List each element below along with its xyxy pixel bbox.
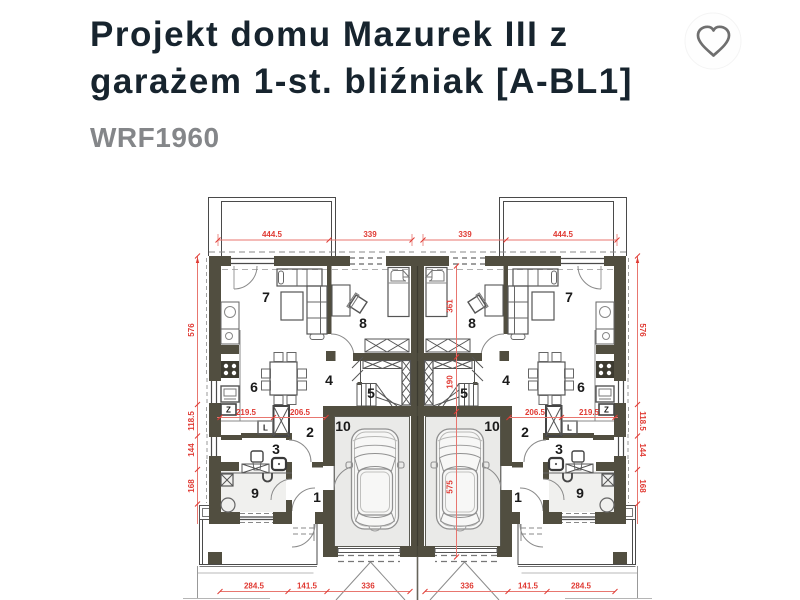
svg-text:206.5: 206.5	[525, 408, 546, 417]
svg-text:7: 7	[565, 289, 573, 305]
svg-text:336: 336	[361, 582, 375, 591]
svg-text:9: 9	[251, 485, 259, 501]
svg-text:361: 361	[446, 299, 455, 313]
svg-text:L: L	[567, 424, 572, 433]
svg-text:576: 576	[638, 323, 647, 337]
svg-text:Z: Z	[226, 406, 231, 415]
svg-text:336: 336	[460, 582, 474, 591]
svg-text:118.5: 118.5	[638, 411, 647, 431]
svg-text:339: 339	[458, 230, 472, 239]
svg-text:141.5: 141.5	[518, 582, 539, 591]
svg-text:6: 6	[250, 379, 258, 395]
svg-text:576: 576	[187, 323, 196, 337]
svg-text:Z: Z	[604, 406, 609, 415]
svg-text:284.5: 284.5	[244, 582, 265, 591]
svg-text:144: 144	[187, 443, 196, 457]
svg-text:1: 1	[514, 489, 522, 505]
svg-text:5: 5	[367, 385, 375, 401]
svg-text:2: 2	[306, 424, 314, 440]
svg-text:9: 9	[576, 485, 584, 501]
svg-text:3: 3	[555, 441, 563, 457]
svg-text:1: 1	[313, 489, 321, 505]
svg-text:219.5: 219.5	[579, 408, 600, 417]
svg-text:118.5: 118.5	[187, 411, 196, 431]
svg-text:444.5: 444.5	[262, 230, 283, 239]
svg-text:141.5: 141.5	[297, 582, 318, 591]
svg-text:206.5: 206.5	[290, 408, 311, 417]
svg-text:8: 8	[468, 315, 476, 331]
svg-text:168: 168	[187, 479, 196, 493]
svg-text:284.5: 284.5	[571, 582, 592, 591]
svg-text:339: 339	[363, 230, 377, 239]
svg-text:2: 2	[521, 424, 529, 440]
svg-text:190: 190	[446, 375, 455, 389]
svg-text:3: 3	[272, 441, 280, 457]
svg-text:444.5: 444.5	[553, 230, 574, 239]
svg-text:6: 6	[577, 379, 585, 395]
svg-text:8: 8	[359, 315, 367, 331]
svg-text:5: 5	[460, 385, 468, 401]
svg-text:10: 10	[484, 418, 500, 434]
svg-text:144: 144	[638, 443, 647, 457]
svg-text:4: 4	[502, 372, 510, 388]
svg-text:10: 10	[335, 418, 351, 434]
svg-text:575: 575	[446, 480, 455, 494]
svg-text:4: 4	[325, 372, 333, 388]
svg-text:7: 7	[262, 289, 270, 305]
svg-text:L: L	[263, 424, 268, 433]
svg-text:168: 168	[638, 479, 647, 493]
svg-text:219.5: 219.5	[236, 408, 257, 417]
